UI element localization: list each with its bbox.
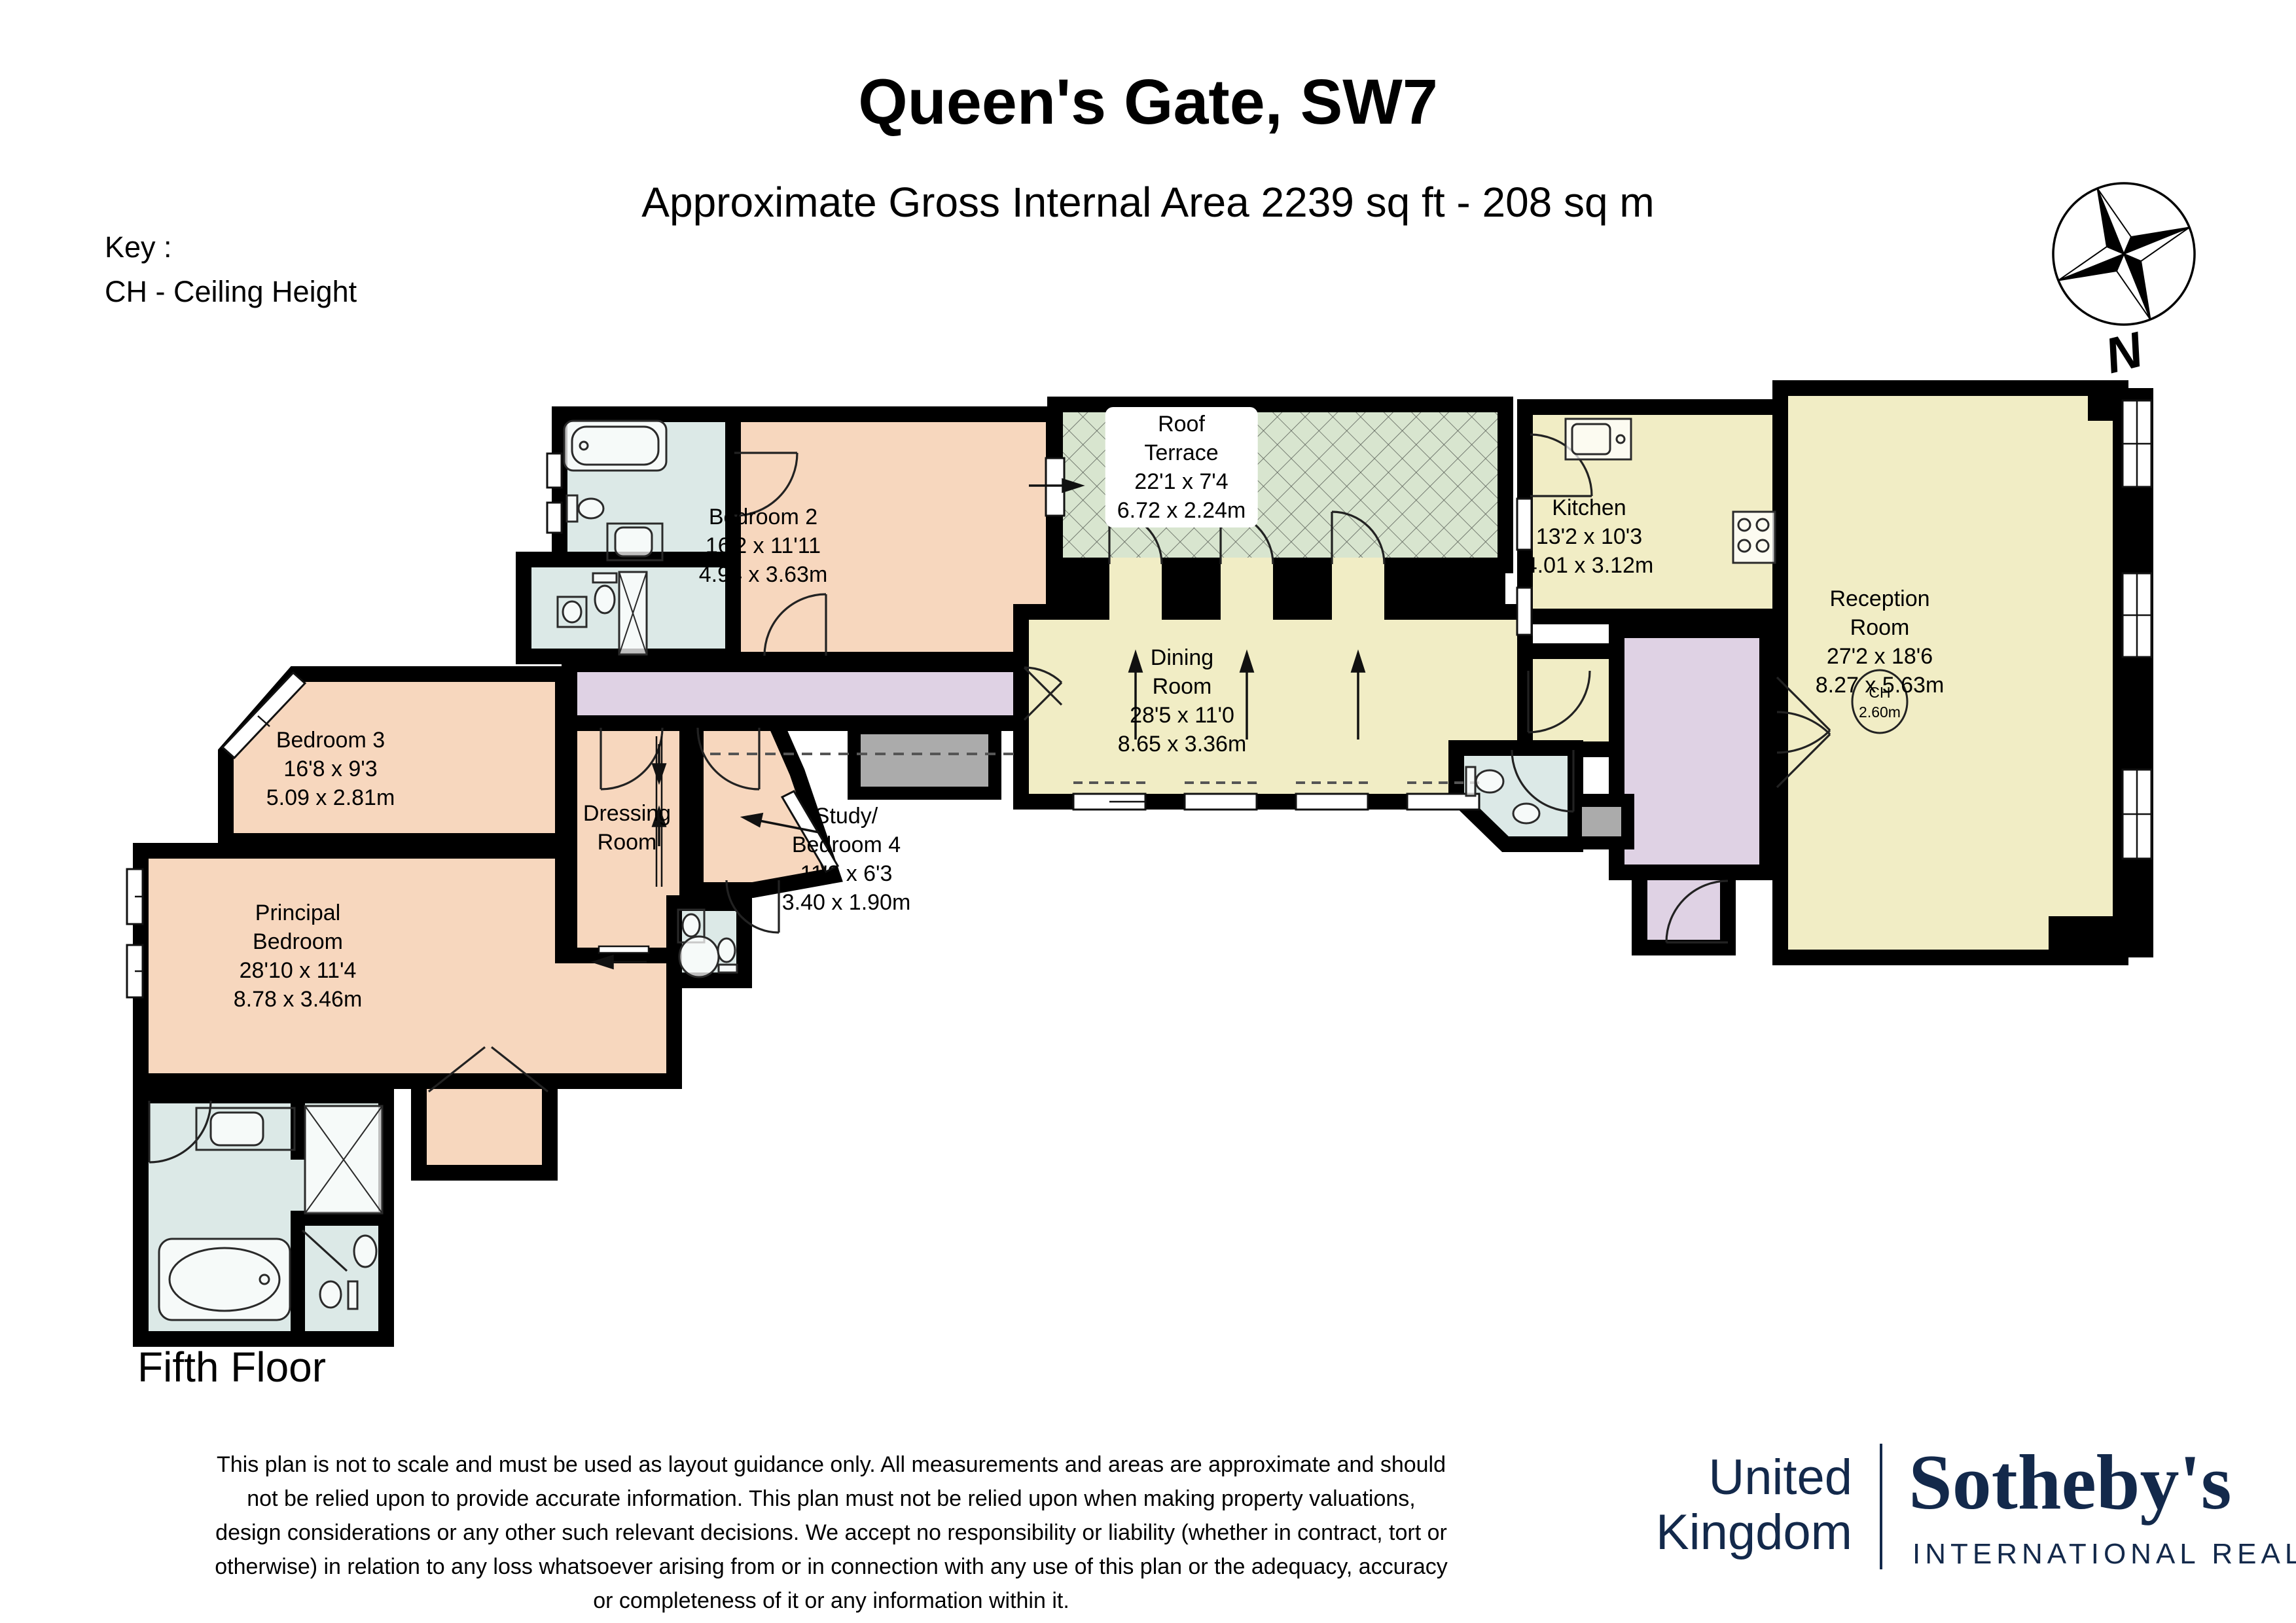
corridor bbox=[569, 664, 1021, 723]
toilet-cistern-icon bbox=[719, 965, 737, 972]
toilet-cistern-icon bbox=[593, 573, 617, 582]
brand-divider bbox=[1880, 1444, 1882, 1569]
label-line: Reception bbox=[1816, 584, 1945, 613]
label-line: 3.40 x 1.90m bbox=[782, 888, 911, 917]
toilet-cistern-icon bbox=[1466, 767, 1475, 796]
principal-bedroom-label: Principal Bedroom 28'10 x 11'4 8.78 x 3.… bbox=[234, 899, 363, 1014]
bedroom-3-label: Bedroom 3 16'8 x 9'3 5.09 x 2.81m bbox=[266, 726, 395, 812]
passage-dining-hall bbox=[1525, 651, 1620, 749]
toilet-icon bbox=[320, 1281, 341, 1308]
label-line: 4.94 x 3.63m bbox=[699, 560, 828, 589]
ceiling-height-label: CH bbox=[1869, 683, 1890, 702]
label-line: Terrace bbox=[1117, 438, 1246, 467]
terrace-door-opening-2 bbox=[1221, 558, 1273, 620]
principal-vestibule bbox=[419, 1081, 550, 1173]
toilet-cistern-icon bbox=[567, 495, 577, 522]
brand-country: United Kingdom bbox=[1577, 1450, 1852, 1560]
window-icon bbox=[547, 503, 562, 533]
label-line: 13'2 x 10'3 bbox=[1525, 522, 1654, 551]
label-line: Bedroom 4 bbox=[782, 830, 911, 859]
disclaimer-line: not be relied upon to provide accurate i… bbox=[215, 1482, 1448, 1516]
label-line: Bedroom 3 bbox=[266, 726, 395, 755]
terrace-door-opening-1 bbox=[1109, 558, 1162, 620]
slider-track bbox=[599, 946, 649, 953]
label-line: 28'10 x 11'4 bbox=[234, 956, 363, 985]
study-bedroom-4-label: Study/ Bedroom 4 11'2 x 6'3 3.40 x 1.90m bbox=[782, 802, 911, 917]
disclaimer-line: This plan is not to scale and must be us… bbox=[215, 1448, 1448, 1482]
label-line: 6.72 x 2.24m bbox=[1117, 496, 1246, 525]
label-line: Room bbox=[1816, 613, 1945, 642]
window-icon bbox=[1185, 794, 1257, 810]
label-line: 28'5 x 11'0 bbox=[1118, 701, 1247, 730]
brand-logo: Sotheby's bbox=[1909, 1437, 2231, 1527]
terrace-door-opening-3 bbox=[1332, 558, 1384, 620]
disclaimer-line: otherwise) in relation to any loss whats… bbox=[215, 1550, 1448, 1584]
toilet-cistern-icon bbox=[348, 1281, 357, 1309]
reduced-headroom-1 bbox=[854, 728, 995, 793]
toilet-icon bbox=[595, 586, 615, 613]
basin-icon bbox=[211, 1113, 263, 1145]
label-line: 5.09 x 2.81m bbox=[266, 783, 395, 812]
brand-logo-subtitle: INTERNATIONAL REALTY bbox=[1912, 1538, 2296, 1571]
kitchen-label: Kitchen 13'2 x 10'3 4.01 x 3.12m bbox=[1525, 493, 1654, 580]
dressing-room-label: Dressing Room bbox=[583, 799, 671, 857]
toilet-icon bbox=[1476, 770, 1503, 793]
label-line: 8.78 x 3.46m bbox=[234, 985, 363, 1014]
window-icon bbox=[547, 454, 562, 488]
label-line: 11'2 x 6'3 bbox=[782, 859, 911, 888]
bedroom-2-label: Bedroom 2 16'2 x 11'11 4.94 x 3.63m bbox=[699, 503, 828, 589]
hob-icon bbox=[1733, 512, 1775, 563]
basin-icon bbox=[354, 1236, 376, 1267]
entrance-hall-strip bbox=[1640, 872, 1728, 948]
compass-rose-icon bbox=[2032, 162, 2215, 346]
disclaimer-line: design considerations or any other such … bbox=[215, 1516, 1448, 1550]
floorplan-page: Queen's Gate, SW7 Approximate Gross Inte… bbox=[0, 0, 2296, 1623]
basin-icon bbox=[1513, 804, 1539, 823]
label-line: 4.01 x 3.12m bbox=[1525, 551, 1654, 580]
window-opening-bed2-terrace bbox=[1046, 458, 1064, 516]
label-line: Study/ bbox=[782, 802, 911, 830]
label-line: 8.65 x 3.36m bbox=[1118, 730, 1247, 758]
label-line: Room bbox=[1118, 672, 1247, 701]
shower-round-icon bbox=[679, 936, 719, 977]
label-line: Roof bbox=[1117, 410, 1246, 438]
reduced-headroom-2 bbox=[1575, 800, 1628, 843]
reception-room-label: Reception Room 27'2 x 18'6 8.27 x 5.63m bbox=[1816, 584, 1945, 700]
brand-country-line: Kingdom bbox=[1577, 1505, 1852, 1560]
basin-icon bbox=[683, 914, 700, 936]
room-entrance-hall bbox=[1617, 630, 1767, 872]
basin-icon bbox=[563, 601, 581, 622]
toilet-icon bbox=[718, 938, 735, 962]
disclaimer-line: or completeness of it or any information… bbox=[215, 1584, 1448, 1618]
brand-country-line: United bbox=[1577, 1450, 1852, 1505]
roof-terrace-label: Roof Terrace 22'1 x 7'4 6.72 x 2.24m bbox=[1105, 407, 1258, 527]
label-line: Bedroom bbox=[234, 927, 363, 956]
toilet-icon bbox=[579, 499, 603, 518]
floor-label: Fifth Floor bbox=[137, 1343, 326, 1391]
label-line: 16'2 x 11'11 bbox=[699, 531, 828, 560]
label-line: 22'1 x 7'4 bbox=[1117, 467, 1246, 496]
label-line: Dining bbox=[1118, 643, 1247, 672]
label-line: 16'8 x 9'3 bbox=[266, 755, 395, 783]
label-line: Kitchen bbox=[1525, 493, 1654, 522]
disclaimer: This plan is not to scale and must be us… bbox=[215, 1448, 1448, 1618]
label-line: Principal bbox=[234, 899, 363, 927]
bathtub-icon bbox=[159, 1239, 290, 1320]
ceiling-height-value: 2.60m bbox=[1859, 703, 1901, 721]
rooms-layer bbox=[141, 388, 2121, 1339]
label-line: Bedroom 2 bbox=[699, 503, 828, 531]
label-line: 27'2 x 18'6 bbox=[1816, 642, 1945, 671]
basin-icon bbox=[615, 527, 652, 556]
label-line: Dressing bbox=[583, 799, 671, 828]
reception-corner-mass bbox=[2049, 916, 2153, 957]
dining-room-label: Dining Room 28'5 x 11'0 8.65 x 3.36m bbox=[1118, 643, 1247, 758]
window-icon bbox=[1296, 794, 1368, 810]
label-line: Room bbox=[583, 828, 671, 857]
window-icon bbox=[1517, 588, 1532, 635]
